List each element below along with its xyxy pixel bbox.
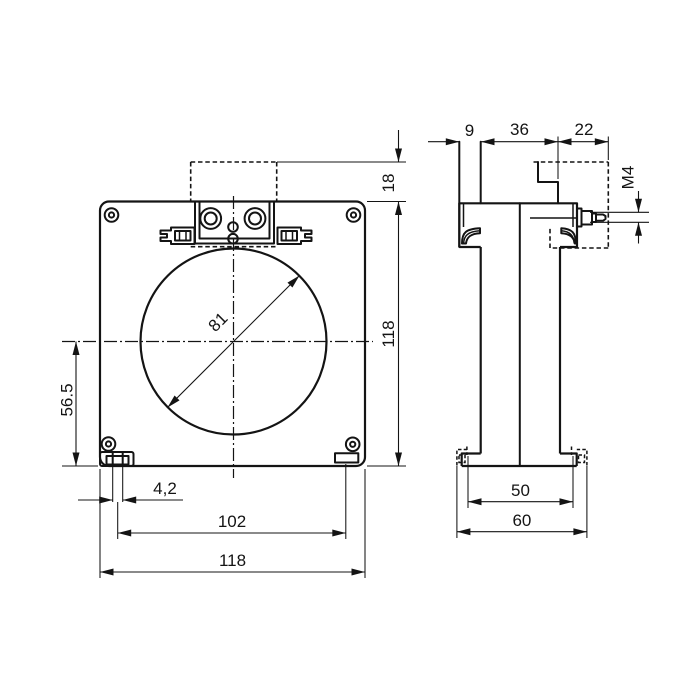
mounting-foot-right [335,453,358,462]
side-clip-left [462,228,480,243]
dimension-hole-center-56-5: 56.5 [58,342,99,467]
cover-notch [538,162,558,203]
dim-label-56-5: 56.5 [58,383,77,416]
terminal-block [195,202,274,244]
dimension-side-top: 9 36 22 [428,120,608,179]
dimension-hole-spacing-102: 102 [118,464,346,539]
dim-label-102: 102 [218,512,246,531]
front-view: 81 18 118 56.5 4,2 [58,130,407,578]
rail-clip-left [161,228,195,245]
dimension-slot-4-2: 4,2 [78,479,183,500]
rail-clip-right [278,228,312,245]
side-clip-right [561,228,576,243]
dim-label-50: 50 [511,481,530,500]
mounting-foot-left [100,452,134,502]
dim-label-118-height: 118 [379,320,398,347]
dim-label-m4: M4 [619,166,638,190]
dim-label-81: 81 [205,309,232,336]
dim-label-22: 22 [575,120,594,139]
side-base-foot [457,447,587,467]
side-view: 9 36 22 M4 50 60 [428,120,649,538]
dim-label-60: 60 [512,511,531,530]
side-body-column [481,203,560,466]
dim-label-118-width: 118 [219,551,246,570]
dim-label-36: 36 [510,120,529,139]
dim-label-4-2: 4,2 [153,479,177,498]
dimension-front-height-118: 118 [367,202,406,467]
drawing-canvas: 81 18 118 56.5 4,2 [0,0,700,700]
m4-terminal-screw [577,209,606,227]
dimension-top-offset-18: 18 [277,130,406,202]
side-flange [459,203,577,247]
dim-label-18: 18 [379,174,398,193]
terminal-screw-right [245,208,266,229]
technical-drawing-page: 81 18 118 56.5 4,2 [0,0,700,700]
terminal-screw-left [200,208,221,229]
dim-label-9: 9 [465,121,474,140]
dimension-m4: M4 [590,166,649,244]
